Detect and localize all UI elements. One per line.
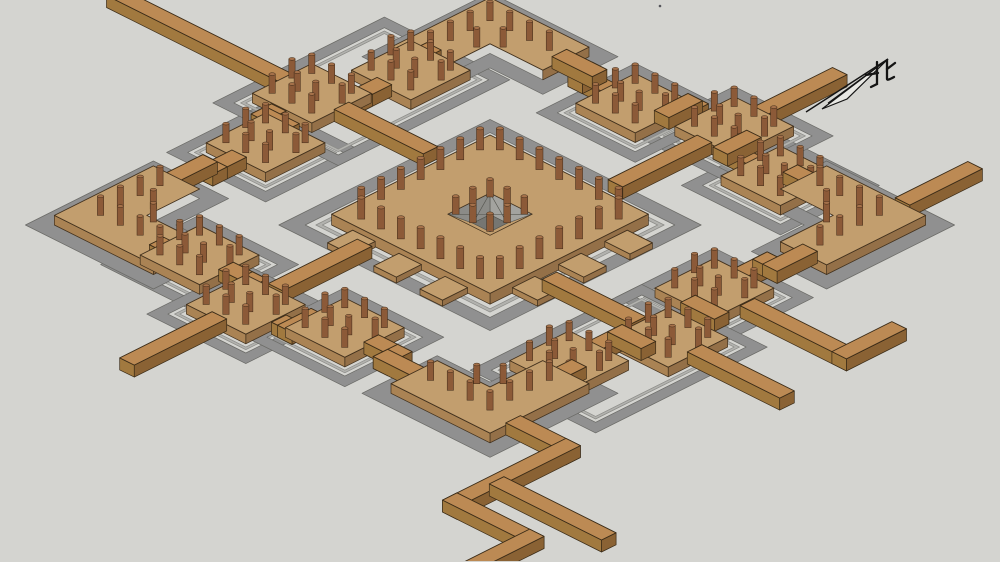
model-scene	[0, 0, 1000, 561]
stray-artifact-dot	[659, 5, 662, 8]
viewport-3d[interactable]: 北	[0, 0, 1000, 561]
